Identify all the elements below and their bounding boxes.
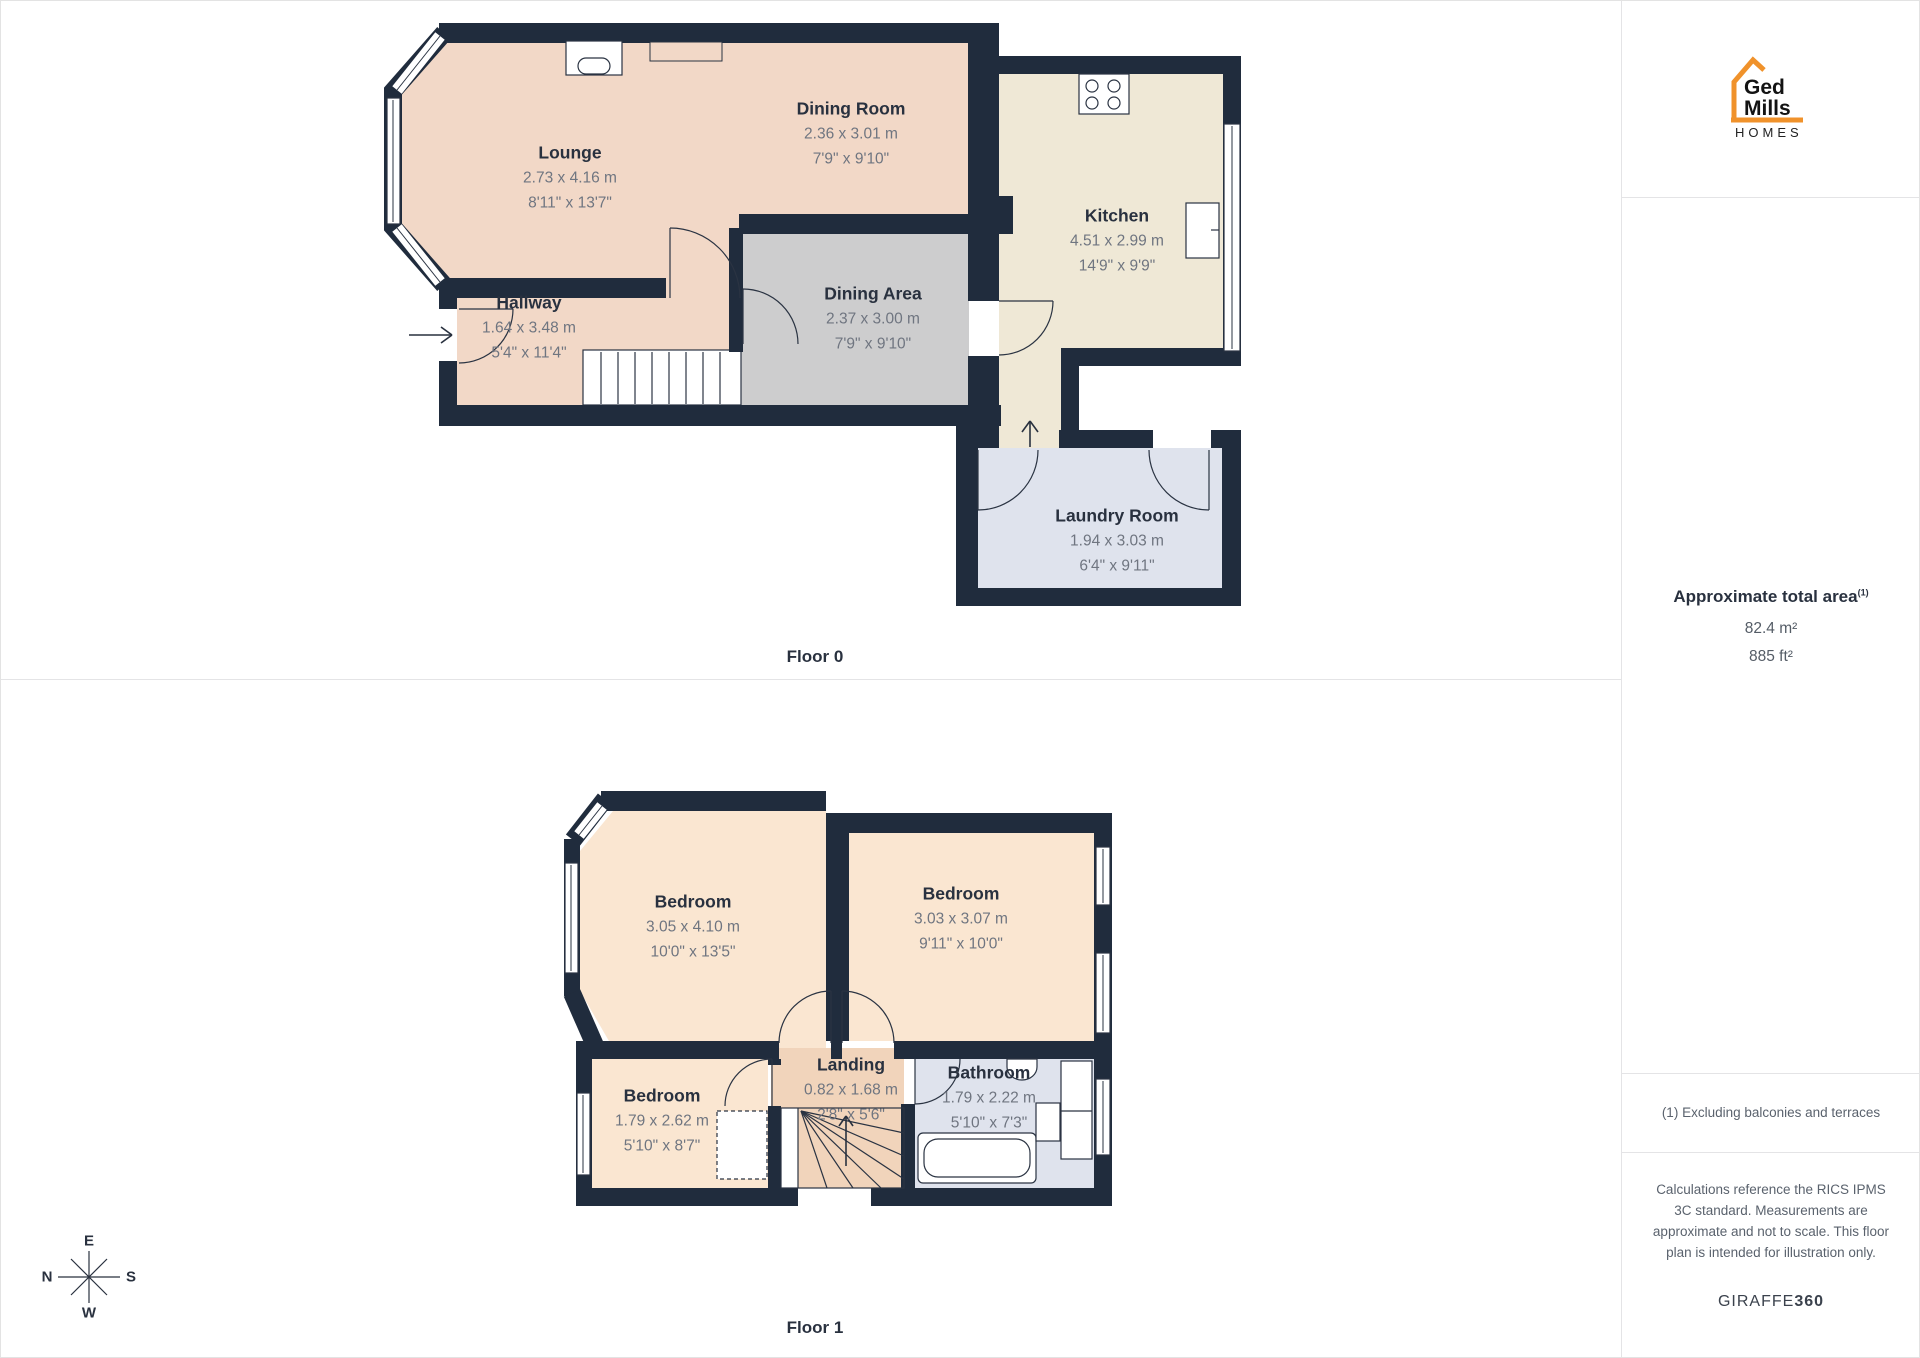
- total-area-m2: 82.4 m²: [1621, 615, 1920, 643]
- room-name: Bedroom: [615, 1084, 709, 1109]
- fireplace: [566, 41, 622, 75]
- sidebar-note-divider: [1621, 1073, 1920, 1074]
- compass-top-letter: E: [84, 1233, 94, 1250]
- compass-icon: [58, 1251, 120, 1303]
- room-label-laundry: Laundry Room 1.94 x 3.03 m 6'4" x 9'11": [1055, 504, 1178, 579]
- room-dim-imperial: 5'10" x 8'7": [615, 1134, 709, 1159]
- total-area-title: Approximate total area(1): [1621, 587, 1920, 607]
- closet: [717, 1111, 767, 1179]
- room-dim-imperial: 6'4" x 9'11": [1055, 554, 1178, 579]
- room-dim-metric: 0.82 x 1.68 m: [804, 1078, 898, 1103]
- room-dim-imperial: 9'11" x 10'0": [914, 932, 1008, 957]
- room-label-bedroom-small: Bedroom 1.79 x 2.62 m 5'10" x 8'7": [615, 1084, 709, 1159]
- compass-bottom-letter: W: [82, 1305, 96, 1322]
- footnote-text: (1) Excluding balconies and terraces: [1621, 1105, 1920, 1120]
- total-area-ft2: 885 ft²: [1621, 643, 1920, 671]
- logo-text-ged: Ged: [1744, 77, 1785, 98]
- room-name: Kitchen: [1070, 204, 1164, 229]
- sidebar-divider: [1621, 1, 1622, 1358]
- sidebar-logo-divider: [1621, 197, 1920, 198]
- compass-right-letter: S: [126, 1269, 136, 1286]
- room-label-kitchen: Kitchen 4.51 x 2.99 m 14'9" x 9'9": [1070, 204, 1164, 279]
- floor0-label: Floor 0: [787, 647, 844, 667]
- compass-left-letter: N: [42, 1269, 53, 1286]
- room-label-bedroom-right: Bedroom 3.03 x 3.07 m 9'11" x 10'0": [914, 882, 1008, 957]
- room-dim-metric: 3.05 x 4.10 m: [646, 915, 740, 940]
- bathtub-icon: [918, 1133, 1036, 1183]
- room-dim-metric: 2.37 x 3.00 m: [824, 307, 922, 332]
- sidebar-disclaimer-divider: [1621, 1152, 1920, 1153]
- room-name: Hallway: [482, 291, 576, 316]
- entrance-arrow-icon: [409, 327, 452, 343]
- room-name: Dining Room: [797, 97, 906, 122]
- room-dim-metric: 3.03 x 3.07 m: [914, 907, 1008, 932]
- wall-alcove: [650, 42, 722, 61]
- footnote-ref: (1): [1858, 587, 1869, 597]
- room-label-dining-area: Dining Area 2.37 x 3.00 m 7'9" x 9'10": [824, 282, 922, 357]
- floorplan-document: Lounge 2.73 x 4.16 m 8'11" x 13'7" Dinin…: [0, 0, 1920, 1358]
- kitchen-appliance: [1186, 203, 1219, 258]
- kitchen-window: [1224, 124, 1240, 351]
- room-label-hallway: Hallway 1.64 x 3.48 m 5'4" x 11'4": [482, 291, 576, 366]
- room-label-lounge: Lounge 2.73 x 4.16 m 8'11" x 13'7": [523, 141, 617, 216]
- room-dim-metric: 2.73 x 4.16 m: [523, 166, 617, 191]
- floor1-label: Floor 1: [787, 1318, 844, 1338]
- brand-name: GIRAFFE: [1718, 1293, 1794, 1310]
- room-name: Lounge: [523, 141, 617, 166]
- ged-mills-logo: Ged Mills HOMES: [1726, 49, 1836, 144]
- total-area-block: Approximate total area(1) 82.4 m² 885 ft…: [1621, 587, 1920, 671]
- room-dim-metric: 1.94 x 3.03 m: [1055, 529, 1178, 554]
- room-name: Bedroom: [646, 890, 740, 915]
- brand-suffix: 360: [1794, 1293, 1824, 1310]
- logo-text-mills: Mills: [1744, 98, 1791, 119]
- staircase-floor0: [583, 350, 741, 405]
- room-dim-metric: 4.51 x 2.99 m: [1070, 229, 1164, 254]
- room-dim-metric: 1.79 x 2.62 m: [615, 1109, 709, 1134]
- room-label-bedroom-left: Bedroom 3.05 x 4.10 m 10'0" x 13'5": [646, 890, 740, 965]
- giraffe360-brand: GIRAFFE360: [1621, 1293, 1920, 1311]
- total-area-title-text: Approximate total area: [1673, 587, 1857, 606]
- room-name: Laundry Room: [1055, 504, 1178, 529]
- room-dim-metric: 1.64 x 3.48 m: [482, 316, 576, 341]
- disclaimer-text: Calculations reference the RICS IPMS 3C …: [1646, 1179, 1896, 1263]
- room-name: Bathroom: [942, 1061, 1036, 1086]
- room-dim-imperial: 10'0" x 13'5": [646, 940, 740, 965]
- room-dim-metric: 2.36 x 3.01 m: [797, 122, 906, 147]
- toilet-icon: [1036, 1103, 1060, 1141]
- room-label-bathroom: Bathroom 1.79 x 2.22 m 5'10" x 7'3": [942, 1061, 1036, 1136]
- room-name: Landing: [804, 1053, 898, 1078]
- room-dim-imperial: 7'9" x 9'10": [797, 147, 906, 172]
- room-label-landing: Landing 0.82 x 1.68 m 2'8" x 5'6": [804, 1053, 898, 1128]
- floors-divider: [1, 679, 1621, 680]
- room-name: Bedroom: [914, 882, 1008, 907]
- room-dim-imperial: 14'9" x 9'9": [1070, 254, 1164, 279]
- room-dim-imperial: 2'8" x 5'6": [804, 1103, 898, 1128]
- room-dim-imperial: 5'10" x 7'3": [942, 1111, 1036, 1136]
- room-label-dining-room: Dining Room 2.36 x 3.01 m 7'9" x 9'10": [797, 97, 906, 172]
- room-dim-metric: 1.79 x 2.22 m: [942, 1086, 1036, 1111]
- bathroom-cabinet: [1061, 1061, 1092, 1159]
- room-dim-imperial: 5'4" x 11'4": [482, 341, 576, 366]
- room-dim-imperial: 8'11" x 13'7": [523, 191, 617, 216]
- stove-icon: [1079, 74, 1129, 114]
- room-dim-imperial: 7'9" x 9'10": [824, 332, 922, 357]
- room-name: Dining Area: [824, 282, 922, 307]
- logo-text-homes: HOMES: [1735, 125, 1803, 140]
